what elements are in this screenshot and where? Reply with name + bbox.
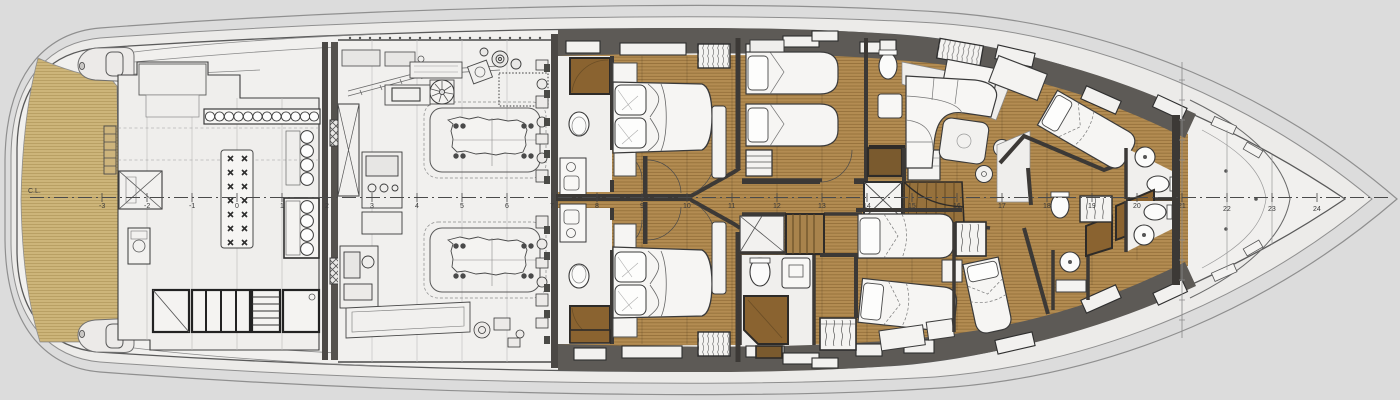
svg-text:18: 18 xyxy=(1043,203,1051,210)
svg-text:19: 19 xyxy=(1088,203,1096,210)
svg-text:5: 5 xyxy=(460,203,464,210)
svg-text:17: 17 xyxy=(998,203,1006,210)
svg-text:11: 11 xyxy=(728,203,735,210)
svg-text:C.L.: C.L. xyxy=(28,188,41,195)
svg-text:8: 8 xyxy=(595,203,599,210)
svg-text:22: 22 xyxy=(1223,206,1231,213)
svg-text:12: 12 xyxy=(773,203,781,210)
svg-text:4: 4 xyxy=(415,203,419,210)
svg-text:0: 0 xyxy=(235,203,239,210)
svg-text:7: 7 xyxy=(550,203,554,210)
svg-text:21: 21 xyxy=(1178,203,1186,210)
svg-text:-1: -1 xyxy=(189,203,195,210)
svg-text:10: 10 xyxy=(683,203,691,210)
svg-text:2: 2 xyxy=(325,203,329,210)
svg-text:1: 1 xyxy=(280,203,284,210)
svg-text:-3: -3 xyxy=(99,203,105,210)
svg-text:16: 16 xyxy=(953,203,961,210)
svg-text:15: 15 xyxy=(908,203,916,210)
svg-text:24: 24 xyxy=(1313,206,1321,213)
svg-text:6: 6 xyxy=(505,203,509,210)
svg-text:3: 3 xyxy=(370,203,374,210)
svg-text:14: 14 xyxy=(863,203,871,210)
svg-text:23: 23 xyxy=(1268,206,1276,213)
svg-text:20: 20 xyxy=(1133,203,1141,210)
svg-text:9: 9 xyxy=(640,203,644,210)
svg-text:-2: -2 xyxy=(144,203,150,210)
svg-text:13: 13 xyxy=(818,203,826,210)
